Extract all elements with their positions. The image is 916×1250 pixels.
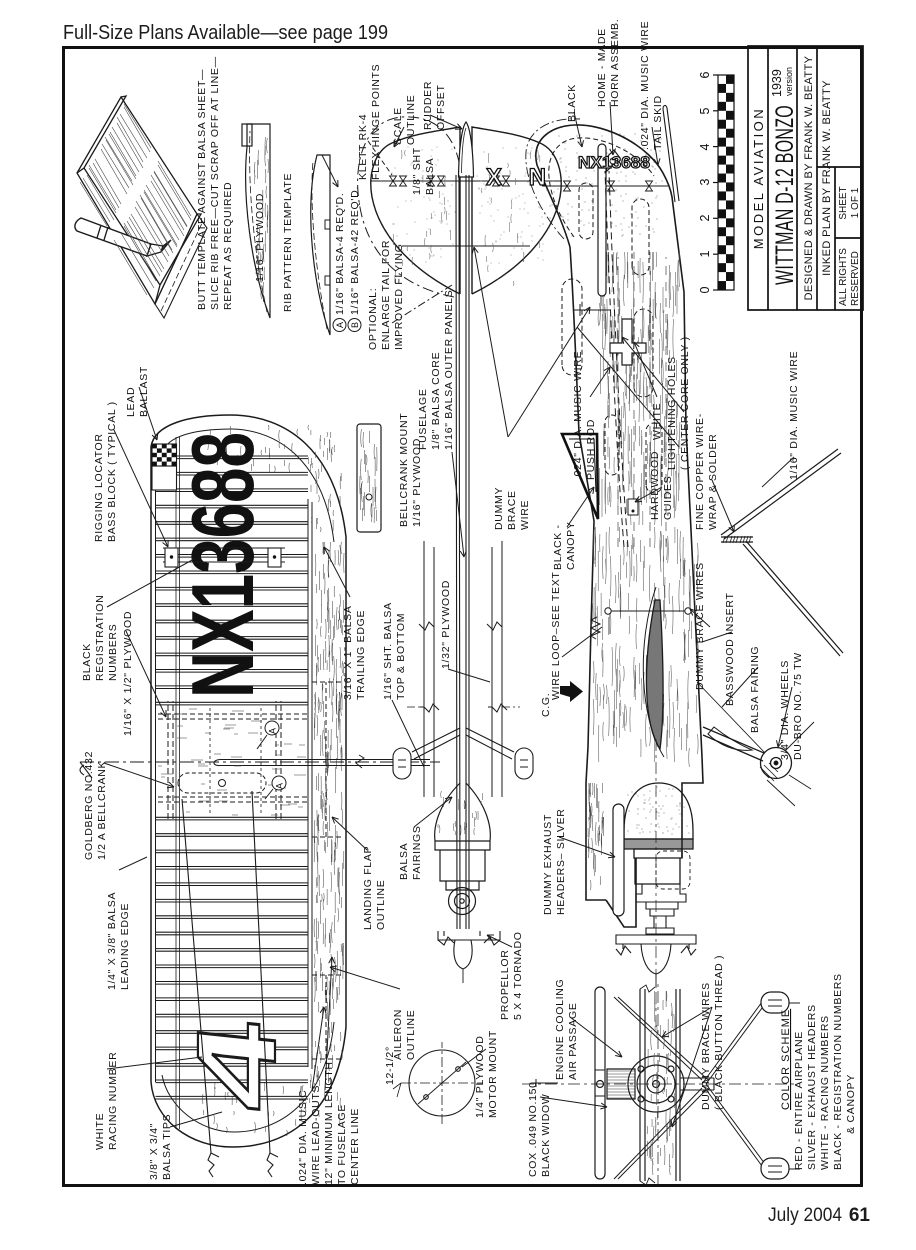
svg-text:( CENTER CORE ONLY ): ( CENTER CORE ONLY ) — [679, 336, 691, 470]
svg-text:WIRE: WIRE — [519, 500, 531, 530]
svg-text:61: 61 — [849, 1205, 871, 1226]
svg-text:LANDING FLAP: LANDING FLAP — [362, 846, 374, 930]
svg-text:BALLAST: BALLAST — [138, 366, 150, 417]
svg-text:FINE COPPER WIRE-: FINE COPPER WIRE- — [694, 413, 706, 530]
svg-text:BLACK -: BLACK - — [552, 524, 564, 570]
svg-text:A: A — [275, 783, 285, 789]
svg-text:BLACK WIDOW: BLACK WIDOW — [540, 1093, 552, 1177]
svg-text:PROPELLOR: PROPELLOR — [499, 950, 511, 1021]
svg-text:KLETT RK-4: KLETT RK-4 — [357, 114, 369, 180]
svg-text:COX .049 NO.150: COX .049 NO.150 — [527, 1081, 539, 1177]
svg-text:TRAILING EDGE: TRAILING EDGE — [355, 610, 367, 700]
svg-text:LEADING EDGE: LEADING EDGE — [119, 903, 131, 990]
svg-text:5 X 4 TORNADO: 5 X 4 TORNADO — [512, 931, 524, 1020]
svg-text:TOP & BOTTOM: TOP & BOTTOM — [395, 613, 407, 700]
svg-text:& CANOPY: & CANOPY — [845, 1074, 857, 1170]
svg-text:A: A — [268, 728, 278, 734]
svg-text:INKED PLAN BY FRANK W. BEA: INKED PLAN BY FRANK W. BEATTY — [821, 80, 833, 276]
svg-text:1 OF 1: 1 OF 1 — [850, 187, 861, 218]
svg-text:BLACK: BLACK — [81, 643, 93, 681]
svg-text:DU-BRO NO. 75 TW: DU-BRO NO. 75 TW — [792, 652, 804, 760]
svg-text:1/16" BALSA-4 REQ'D.: 1/16" BALSA-4 REQ'D. — [334, 193, 346, 315]
svg-text:CANOPY: CANOPY — [565, 521, 577, 570]
svg-text:1/4" PLYWOOD: 1/4" PLYWOOD — [474, 1035, 486, 1118]
svg-text:5: 5 — [698, 107, 712, 114]
svg-text:WHITE: WHITE — [651, 403, 663, 440]
svg-text:1939: 1939 — [770, 69, 784, 97]
svg-text:RESERVED: RESERVED — [850, 251, 861, 306]
svg-text:1/4" X 3/8" BALSA: 1/4" X 3/8" BALSA — [106, 892, 118, 990]
svg-text:NX13688: NX13688 — [578, 153, 650, 172]
svg-text:WIRE LOOP–SEE TEXT: WIRE LOOP–SEE TEXT — [550, 571, 562, 700]
svg-text:OUTLINE: OUTLINE — [405, 95, 417, 145]
svg-text:version: version — [784, 67, 794, 96]
svg-text:LIGHTENING HOLES: LIGHTENING HOLES — [666, 356, 678, 470]
svg-text:.024" DIA. MUSIC WIRE: .024" DIA. MUSIC WIRE — [572, 351, 584, 480]
svg-text:RIGGING LOCATOR: RIGGING LOCATOR — [93, 433, 105, 542]
svg-text:1/32" PLYWOOD: 1/32" PLYWOOD — [440, 580, 452, 669]
svg-text:BASSWOOD INSERT: BASSWOOD INSERT — [724, 592, 736, 706]
svg-text:FUSELAGE: FUSELAGE — [417, 388, 429, 450]
svg-text:REPEAT AS REQUIRED: REPEAT AS REQUIRED — [222, 182, 234, 310]
svg-text:ENGINE COOLING: ENGINE COOLING — [554, 979, 566, 1080]
svg-text:X N: X N — [486, 164, 556, 191]
svg-text:1/16" PLYWOOD: 1/16" PLYWOOD — [254, 193, 266, 282]
svg-text:BALSA: BALSA — [398, 843, 410, 880]
svg-text:BASS BLOCK ( TYPICAL ): BASS BLOCK ( TYPICAL ) — [106, 401, 118, 542]
svg-text:CENTER LINE: CENTER LINE — [349, 1108, 361, 1185]
svg-text:1: 1 — [698, 250, 712, 257]
svg-text:HEADERS– SILVER: HEADERS– SILVER — [555, 808, 567, 915]
svg-text:3/4" DIA. WHEELS: 3/4" DIA. WHEELS — [779, 660, 791, 760]
svg-text:NX13688: NX13688 — [173, 432, 272, 698]
svg-text:B: B — [350, 322, 360, 328]
svg-text:ENLARGE TAIL FOR: ENLARGE TAIL FOR — [380, 240, 392, 350]
svg-text:A: A — [335, 322, 345, 328]
svg-text:TO FUSELAGE: TO FUSELAGE — [336, 1104, 348, 1185]
svg-text:HARDWOOD: HARDWOOD — [649, 451, 661, 520]
svg-text:0: 0 — [698, 286, 712, 293]
svg-text:BALSA: BALSA — [424, 158, 436, 195]
svg-text:PUSH ROD: PUSH ROD — [585, 419, 597, 480]
svg-text:HOME - MADE: HOME - MADE — [596, 28, 608, 107]
svg-text:RED - ENTIRE AIRPLANE: RED - ENTIRE AIRPLANE — [793, 1031, 805, 1170]
svg-text:4: 4 — [698, 143, 712, 150]
svg-text:.024" DIA. MUSIC WIRE: .024" DIA. MUSIC WIRE — [639, 21, 651, 150]
svg-text:1/16" BALSA OUTER PANELS: 1/16" BALSA OUTER PANELS — [443, 290, 455, 450]
svg-text:COLOR SCHEME: COLOR SCHEME — [780, 1009, 792, 1110]
svg-text:1/2 A BELLCRANK: 1/2 A BELLCRANK — [96, 761, 108, 860]
svg-text:GUIDES: GUIDES — [662, 476, 674, 520]
svg-text:1/16" SHT. BALSA: 1/16" SHT. BALSA — [382, 602, 394, 700]
svg-text:GOLDBERG NO.432: GOLDBERG NO.432 — [83, 751, 95, 860]
svg-text:SCALE: SCALE — [392, 107, 404, 145]
svg-text:RACING NUMBER: RACING NUMBER — [107, 1052, 119, 1150]
svg-text:DUMMY BRACE WIRES: DUMMY BRACE WIRES — [694, 562, 706, 690]
svg-text:1/16" X 1/2" PLYWOOD: 1/16" X 1/2" PLYWOOD — [122, 611, 134, 736]
svg-text:1/8" SHT: 1/8" SHT — [411, 147, 423, 195]
svg-text:BLACK - REGISTRATION NUMBERS: BLACK - REGISTRATION NUMBERS — [832, 973, 844, 1170]
svg-text:3/8" X 3/4": 3/8" X 3/4" — [148, 1123, 160, 1180]
svg-text:3/16" X 1" BALSA: 3/16" X 1" BALSA — [342, 605, 354, 700]
svg-text:TAIL SKID: TAIL SKID — [652, 95, 664, 150]
svg-text:LEAD: LEAD — [125, 387, 137, 417]
svg-text:C.G.: C.G. — [540, 693, 552, 717]
svg-text:2: 2 — [698, 214, 712, 221]
svg-text:1/8" BALSA CORE: 1/8" BALSA CORE — [430, 352, 442, 450]
svg-text:WHITE: WHITE — [94, 1113, 106, 1150]
svg-text:BALSA FAIRING: BALSA FAIRING — [749, 646, 761, 733]
svg-text:WRAP & SOLDER: WRAP & SOLDER — [707, 434, 719, 530]
svg-text:12-1/2°: 12-1/2° — [384, 1046, 396, 1085]
svg-text:WIRE LEAD-OUTS: WIRE LEAD-OUTS — [310, 1085, 322, 1185]
svg-text:NUMBERS: NUMBERS — [107, 624, 119, 681]
svg-text:FAIRINGS: FAIRINGS — [411, 825, 423, 880]
svg-text:July 2004: July 2004 — [768, 1205, 842, 1226]
svg-text:AIR PASSAGE: AIR PASSAGE — [567, 1002, 579, 1080]
svg-text:HORN ASSEMB.: HORN ASSEMB. — [609, 19, 621, 107]
svg-text:OFFSET: OFFSET — [435, 84, 447, 130]
svg-text:4: 4 — [173, 1015, 299, 1116]
svg-text:SHEET: SHEET — [838, 186, 849, 219]
svg-text:IMPROVED FLYING: IMPROVED FLYING — [393, 243, 405, 350]
svg-text:OPTIONAL:: OPTIONAL: — [367, 288, 379, 350]
svg-text:BALSA TIPS: BALSA TIPS — [161, 1114, 173, 1180]
svg-text:RIB PATTERN TEMPLATE: RIB PATTERN TEMPLATE — [282, 173, 294, 312]
svg-text:BRACE: BRACE — [506, 490, 518, 530]
svg-text:DUMMY: DUMMY — [493, 487, 505, 530]
svg-text:6: 6 — [698, 71, 712, 78]
svg-text:WHITE - RACING NUMBERS: WHITE - RACING NUMBERS — [819, 1015, 831, 1170]
svg-text:FLEX HINGE POINTS: FLEX HINGE POINTS — [370, 64, 382, 180]
svg-text:SLICE RIB FREE—CUT SCRAP O: SLICE RIB FREE—CUT SCRAP OFF AT LINE— — [209, 56, 221, 310]
svg-text:.024" DIA. MUSIC: .024" DIA. MUSIC — [297, 1090, 309, 1185]
svg-text:BELLCRANK MOUNT: BELLCRANK MOUNT — [398, 413, 410, 527]
svg-text:BUTT TEMPLATE AGAINST BALSA: BUTT TEMPLATE AGAINST BALSA SHEET— — [196, 69, 208, 310]
svg-text:1/16" DIA. MUSIC WIRE: 1/16" DIA. MUSIC WIRE — [788, 351, 800, 480]
svg-text:WITTMAN D-12 BONZO: WITTMAN D-12 BONZO — [771, 105, 799, 285]
svg-text:BLACK: BLACK — [566, 84, 578, 122]
svg-text:MODEL AVIATION: MODEL AVIATION — [751, 107, 766, 249]
svg-text:DESIGNED & DRAWN BY FRANK W: DESIGNED & DRAWN BY FRANK W. BEATTY — [803, 55, 815, 300]
svg-text:1/16" PLYWOOD: 1/16" PLYWOOD — [411, 438, 423, 527]
svg-text:RUDDER: RUDDER — [422, 81, 434, 130]
svg-text:OUTLINE: OUTLINE — [375, 880, 387, 930]
svg-text:( BLACK BUTTON THREAD ): ( BLACK BUTTON THREAD ) — [713, 955, 725, 1110]
svg-text:1/16" BALSA-42 REQ'D.: 1/16" BALSA-42 REQ'D. — [349, 186, 361, 315]
svg-text:DUMMY EXHAUST: DUMMY EXHAUST — [542, 814, 554, 915]
svg-text:SILVER - EXHAUST HEADERS: SILVER - EXHAUST HEADERS — [806, 1004, 818, 1170]
svg-text:DUMMY BRACE WIRES: DUMMY BRACE WIRES — [700, 982, 712, 1110]
svg-text:12" MINIMUM LENGTH: 12" MINIMUM LENGTH — [323, 1061, 335, 1185]
svg-text:OUTLINE: OUTLINE — [405, 1010, 417, 1060]
svg-text:ALL RIGHTS: ALL RIGHTS — [838, 248, 849, 306]
svg-text:Full-Size Plans Available—see: Full-Size Plans Available—see page 199 — [63, 22, 388, 44]
svg-text:MOTOR MOUNT: MOTOR MOUNT — [487, 1030, 499, 1118]
svg-text:REGISTRATION: REGISTRATION — [94, 595, 106, 681]
svg-text:3: 3 — [698, 178, 712, 185]
